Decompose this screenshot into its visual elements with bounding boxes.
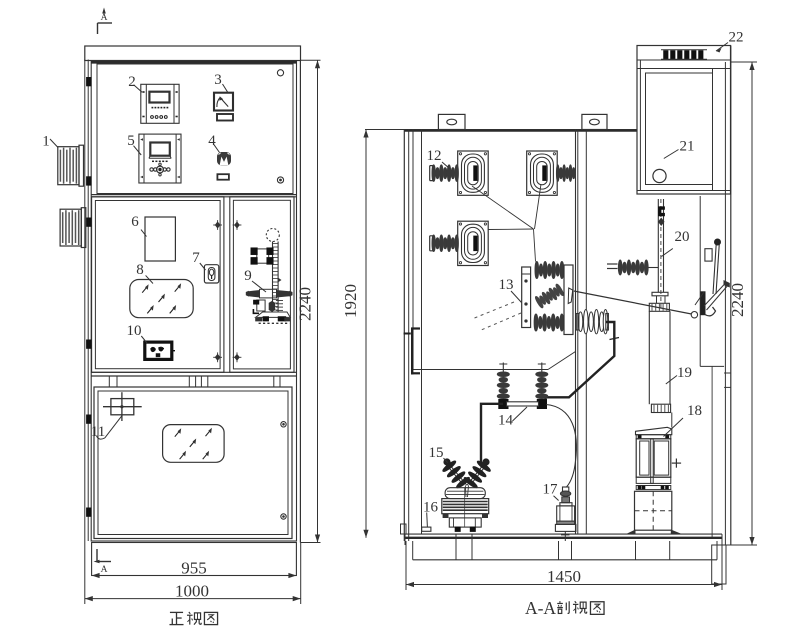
- svg-text:8: 8: [136, 262, 144, 278]
- svg-text:20: 20: [675, 229, 690, 245]
- svg-text:21: 21: [680, 139, 695, 155]
- svg-text:A: A: [101, 565, 108, 575]
- svg-text:2: 2: [128, 74, 136, 90]
- svg-text:1000: 1000: [175, 582, 209, 601]
- svg-text:1: 1: [42, 134, 50, 150]
- svg-text:18: 18: [687, 403, 702, 419]
- svg-text:16: 16: [423, 500, 439, 516]
- svg-text:19: 19: [677, 365, 692, 381]
- svg-text:9: 9: [244, 268, 252, 284]
- svg-text:7: 7: [192, 250, 200, 266]
- svg-text:12: 12: [427, 148, 442, 164]
- svg-text:15: 15: [429, 445, 444, 461]
- svg-text:17: 17: [543, 482, 559, 498]
- svg-text:1450: 1450: [547, 567, 581, 586]
- svg-text:10: 10: [127, 323, 142, 339]
- svg-text:2240: 2240: [296, 287, 315, 321]
- svg-text:2240: 2240: [728, 283, 747, 317]
- svg-text:955: 955: [181, 559, 207, 578]
- svg-text:22: 22: [729, 30, 744, 46]
- svg-text:14: 14: [498, 413, 514, 429]
- svg-text:6: 6: [131, 214, 139, 230]
- svg-text:A: A: [101, 13, 108, 23]
- svg-text:13: 13: [499, 277, 514, 293]
- svg-text:A-A: A-A: [525, 598, 556, 618]
- svg-text:3: 3: [214, 72, 222, 88]
- svg-text:1920: 1920: [341, 284, 360, 318]
